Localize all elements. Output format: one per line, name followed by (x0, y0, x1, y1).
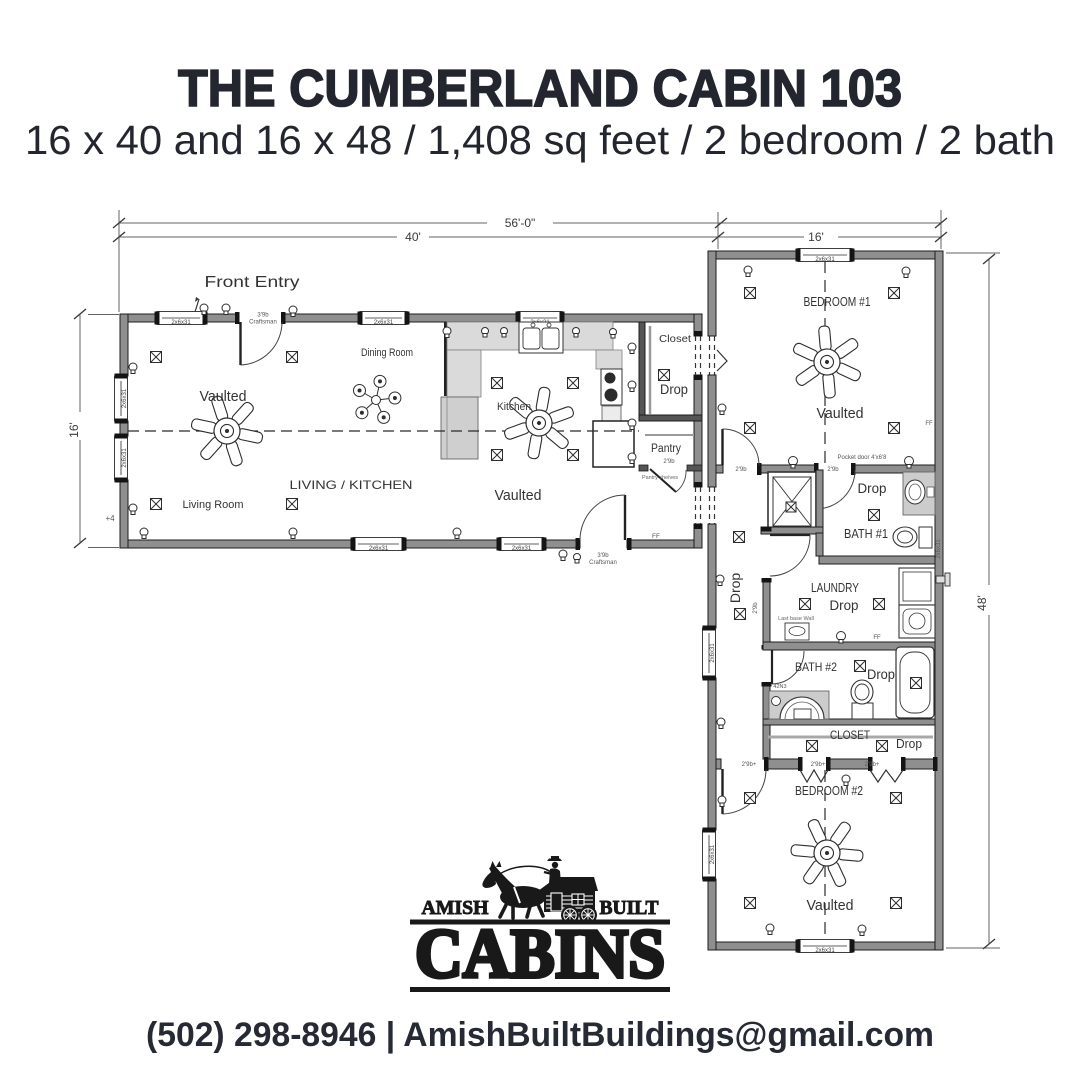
svg-text:THE CUMBERLAND CABIN 103: THE CUMBERLAND CABIN 103 (178, 60, 902, 118)
svg-text:Front Entry: Front Entry (205, 274, 300, 291)
svg-text:16 x 40 and 16 x 48 / 1,408 sq: 16 x 40 and 16 x 48 / 1,408 sq feet / 2 … (25, 117, 1055, 163)
svg-text:Dining Room: Dining Room (361, 347, 413, 359)
svg-text:BEDROOM #1: BEDROOM #1 (804, 295, 871, 309)
svg-text:Closet: Closet (659, 333, 691, 345)
svg-text:2x6x31: 2x6x31 (710, 844, 716, 864)
svg-text:Kitchen: Kitchen (497, 401, 531, 413)
svg-text:16': 16' (808, 230, 824, 244)
svg-text:FF: FF (652, 533, 660, 540)
svg-text:56'-0": 56'-0" (505, 216, 536, 230)
svg-text:2x6x31: 2x6x31 (122, 448, 128, 468)
svg-text:Living Room: Living Room (183, 499, 244, 511)
svg-text:3'9b: 3'9b (257, 313, 269, 319)
svg-text:Craftsman: Craftsman (589, 560, 617, 566)
svg-text:BEDROOM #2: BEDROOM #2 (795, 784, 863, 798)
svg-text:16': 16' (67, 422, 81, 438)
svg-text:2'9b: 2'9b (827, 467, 839, 473)
svg-text:2x6x31: 2x6x31 (374, 320, 394, 326)
svg-text:2x6x31: 2x6x31 (369, 546, 389, 552)
svg-text:Vaulted: Vaulted (817, 405, 864, 422)
svg-text:+4: +4 (105, 514, 115, 523)
svg-text:2x6x31: 2x6x31 (512, 546, 532, 552)
svg-text:48': 48' (975, 595, 989, 611)
svg-text:2x6x31: 2x6x31 (122, 388, 128, 408)
svg-text:40': 40' (405, 230, 421, 244)
svg-text:Drop: Drop (867, 666, 895, 682)
svg-text:Drop: Drop (896, 736, 922, 751)
svg-text:Drop: Drop (660, 381, 688, 397)
svg-text:LIVING / KITCHEN: LIVING / KITCHEN (290, 478, 413, 492)
svg-text:FF: FF (873, 635, 881, 641)
svg-text:Pocket door 4'x6'8: Pocket door 4'x6'8 (838, 455, 888, 461)
svg-text:2'9b+: 2'9b+ (865, 762, 880, 768)
svg-text:3'9b: 3'9b (597, 553, 609, 559)
svg-text:(502) 298-8946 | AmishBuiltBui: (502) 298-8946 | AmishBuiltBuildings@gma… (146, 1016, 934, 1054)
svg-text:Pantry: Pantry (651, 443, 681, 455)
svg-text:BATH #2: BATH #2 (795, 660, 837, 674)
svg-text:2'9b: 2'9b (735, 467, 747, 473)
svg-text:Last base Wall: Last base Wall (778, 616, 814, 622)
svg-text:Drop: Drop (727, 573, 743, 604)
svg-text:CABINS: CABINS (415, 916, 665, 993)
svg-text:LAUNDRY: LAUNDRY (811, 581, 860, 595)
svg-text:2x6x31: 2x6x31 (710, 643, 716, 663)
svg-text:2x6x31: 2x6x31 (936, 539, 942, 559)
svg-text:2'9b: 2'9b (663, 459, 675, 465)
svg-text:Vaulted: Vaulted (200, 388, 247, 405)
svg-text:FF: FF (925, 421, 933, 427)
svg-text:2'9b+: 2'9b+ (742, 762, 757, 768)
svg-text:42N3: 42N3 (773, 684, 786, 690)
svg-text:CLOSET: CLOSET (830, 730, 870, 742)
svg-text:Vaulted: Vaulted (807, 897, 854, 914)
svg-text:2x6x31: 2x6x31 (171, 320, 191, 326)
svg-text:Pantry shelves: Pantry shelves (642, 475, 678, 481)
svg-text:Drop: Drop (830, 597, 859, 613)
svg-text:2x6x31: 2x6x31 (815, 948, 835, 954)
svg-text:BATH #1: BATH #1 (844, 527, 888, 541)
svg-text:Vaulted: Vaulted (495, 487, 542, 504)
svg-text:2'9b+: 2'9b+ (811, 762, 826, 768)
svg-text:2'9b: 2'9b (753, 602, 759, 614)
svg-text:Craftsman: Craftsman (249, 320, 277, 326)
svg-text:Drop: Drop (858, 480, 887, 496)
